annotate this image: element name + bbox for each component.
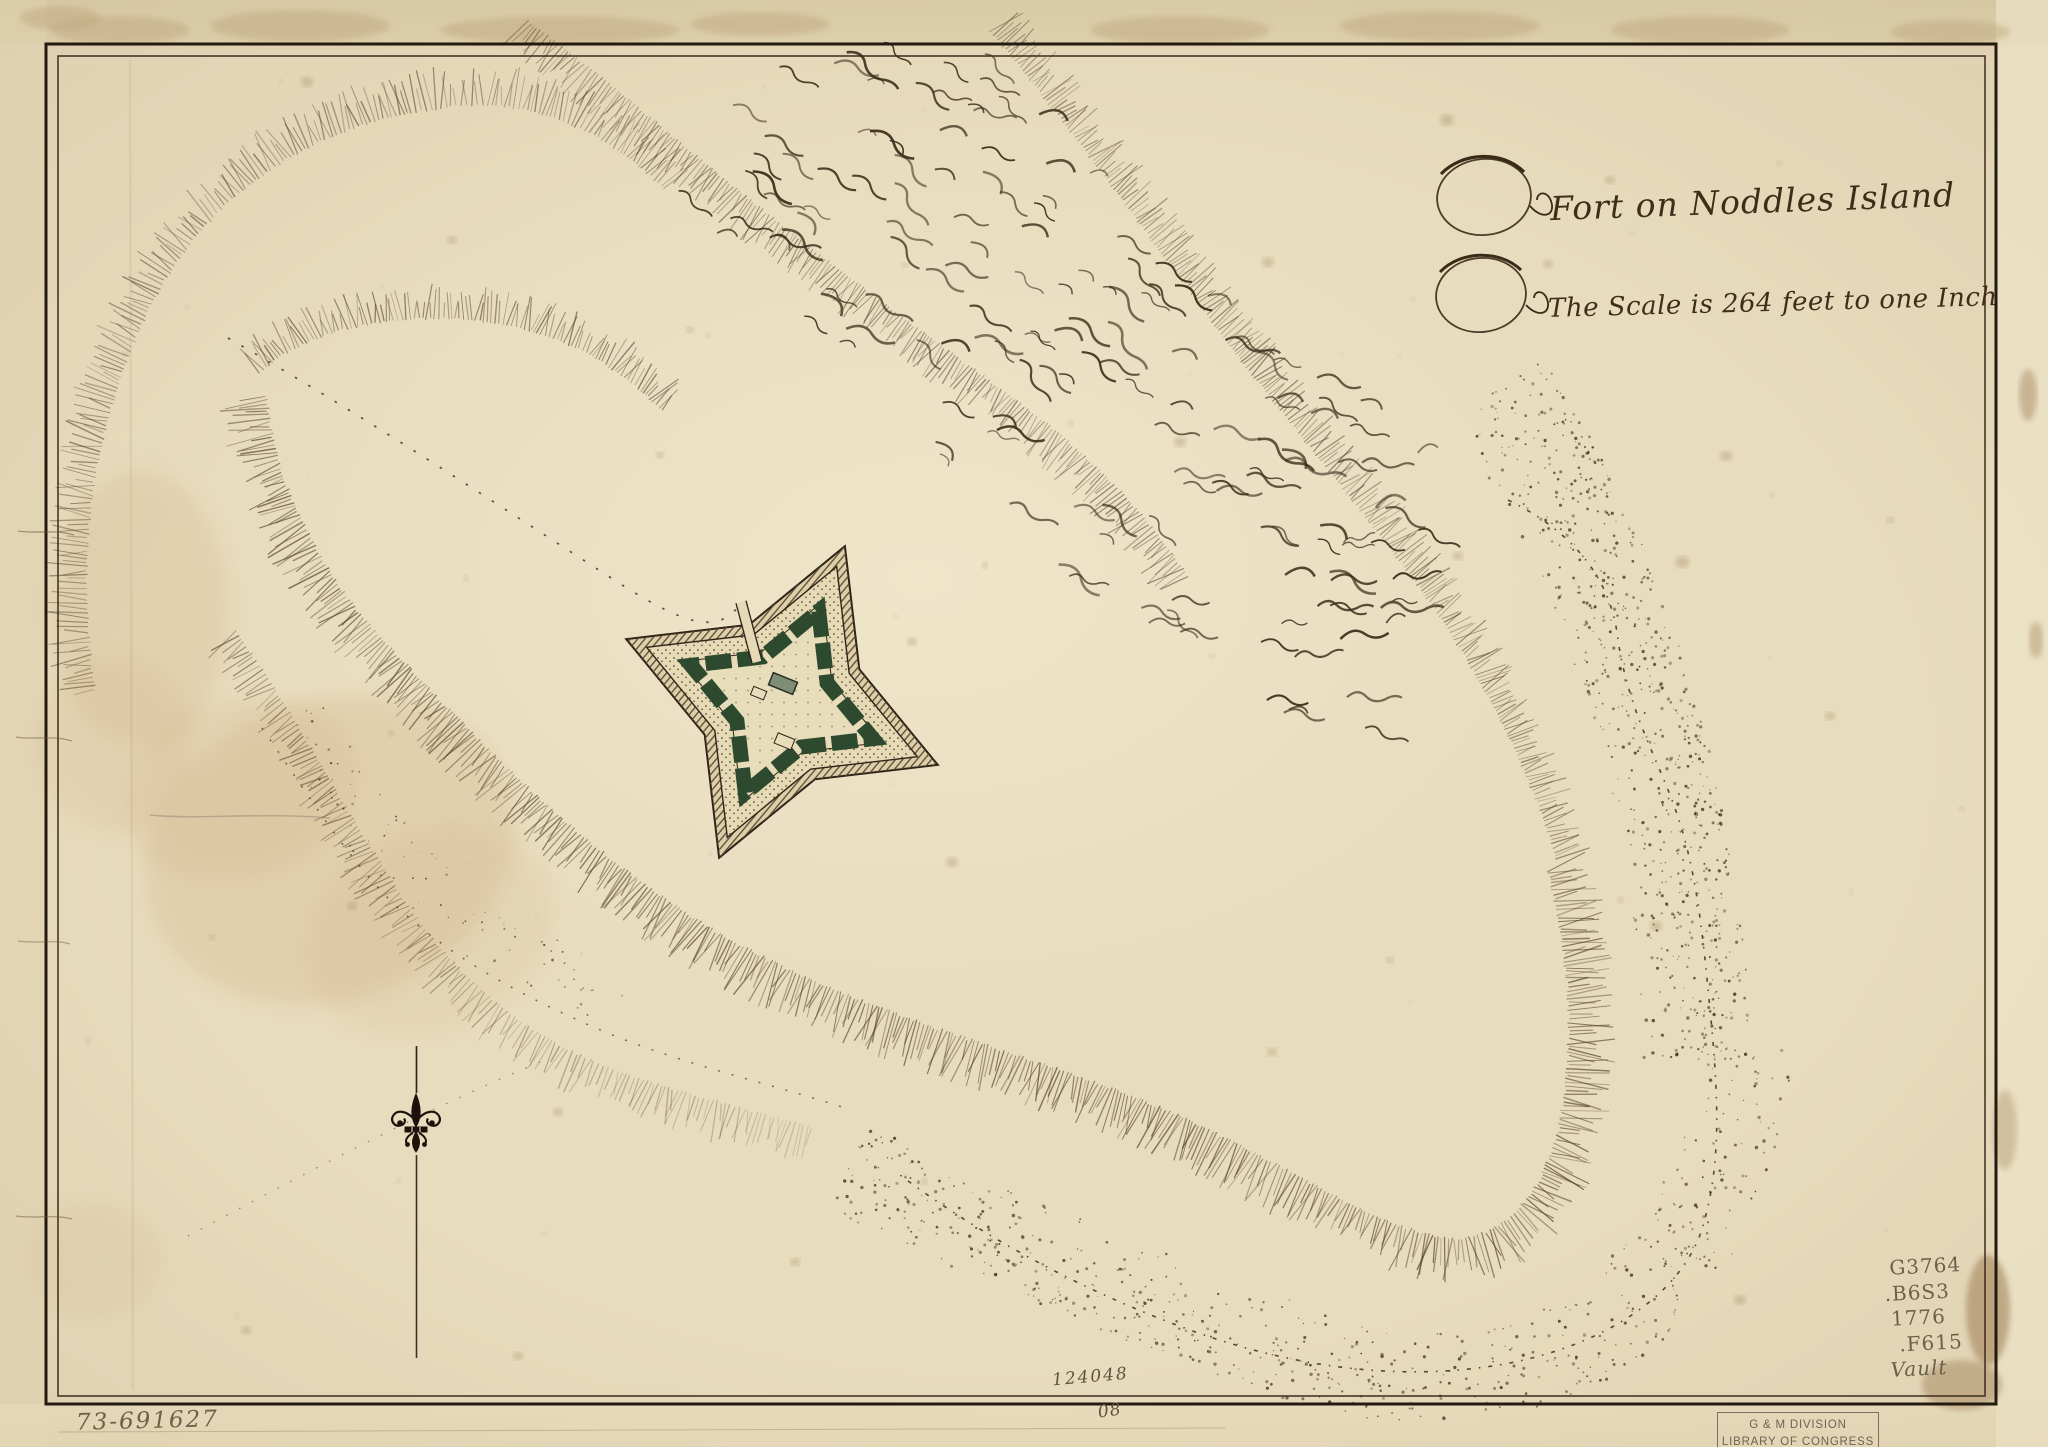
call-number-line: G3764 bbox=[1889, 1252, 1962, 1281]
north-meridian bbox=[392, 1046, 440, 1358]
negative-number-annotation: 73-691627 bbox=[76, 1406, 219, 1436]
fort-hill-ring-top-hachures bbox=[240, 285, 678, 410]
map-sheet: Fort on Noddles Island The Scale is 264 … bbox=[0, 0, 2048, 1447]
shoreline bbox=[900, 500, 1717, 1372]
call-number-annotation: G3764 .B6S3 1776 .F615 Vault bbox=[1883, 1252, 1967, 1384]
stamp-institution-line: LIBRARY OF CONGRESS bbox=[1718, 1434, 1878, 1447]
fort-plan bbox=[626, 546, 938, 858]
stamp-division-line: G & M DIVISION bbox=[1718, 1417, 1878, 1434]
title-flourish bbox=[1433, 154, 1552, 239]
low-water-dotted-line bbox=[188, 1062, 540, 1236]
fleur-de-lis-icon bbox=[392, 1094, 440, 1152]
library-stamp: G & M DIVISION LIBRARY OF CONGRESS bbox=[1717, 1412, 1879, 1447]
call-number-line: 1776 bbox=[1890, 1303, 1964, 1332]
call-number-line: .F615 bbox=[1899, 1329, 1966, 1358]
marsh-east-fringe-hachures bbox=[990, 13, 1589, 859]
scale-flourish bbox=[1432, 253, 1548, 336]
plate-number-annotation: 08 bbox=[1097, 1399, 1123, 1422]
call-number-line: Vault bbox=[1890, 1354, 1967, 1384]
